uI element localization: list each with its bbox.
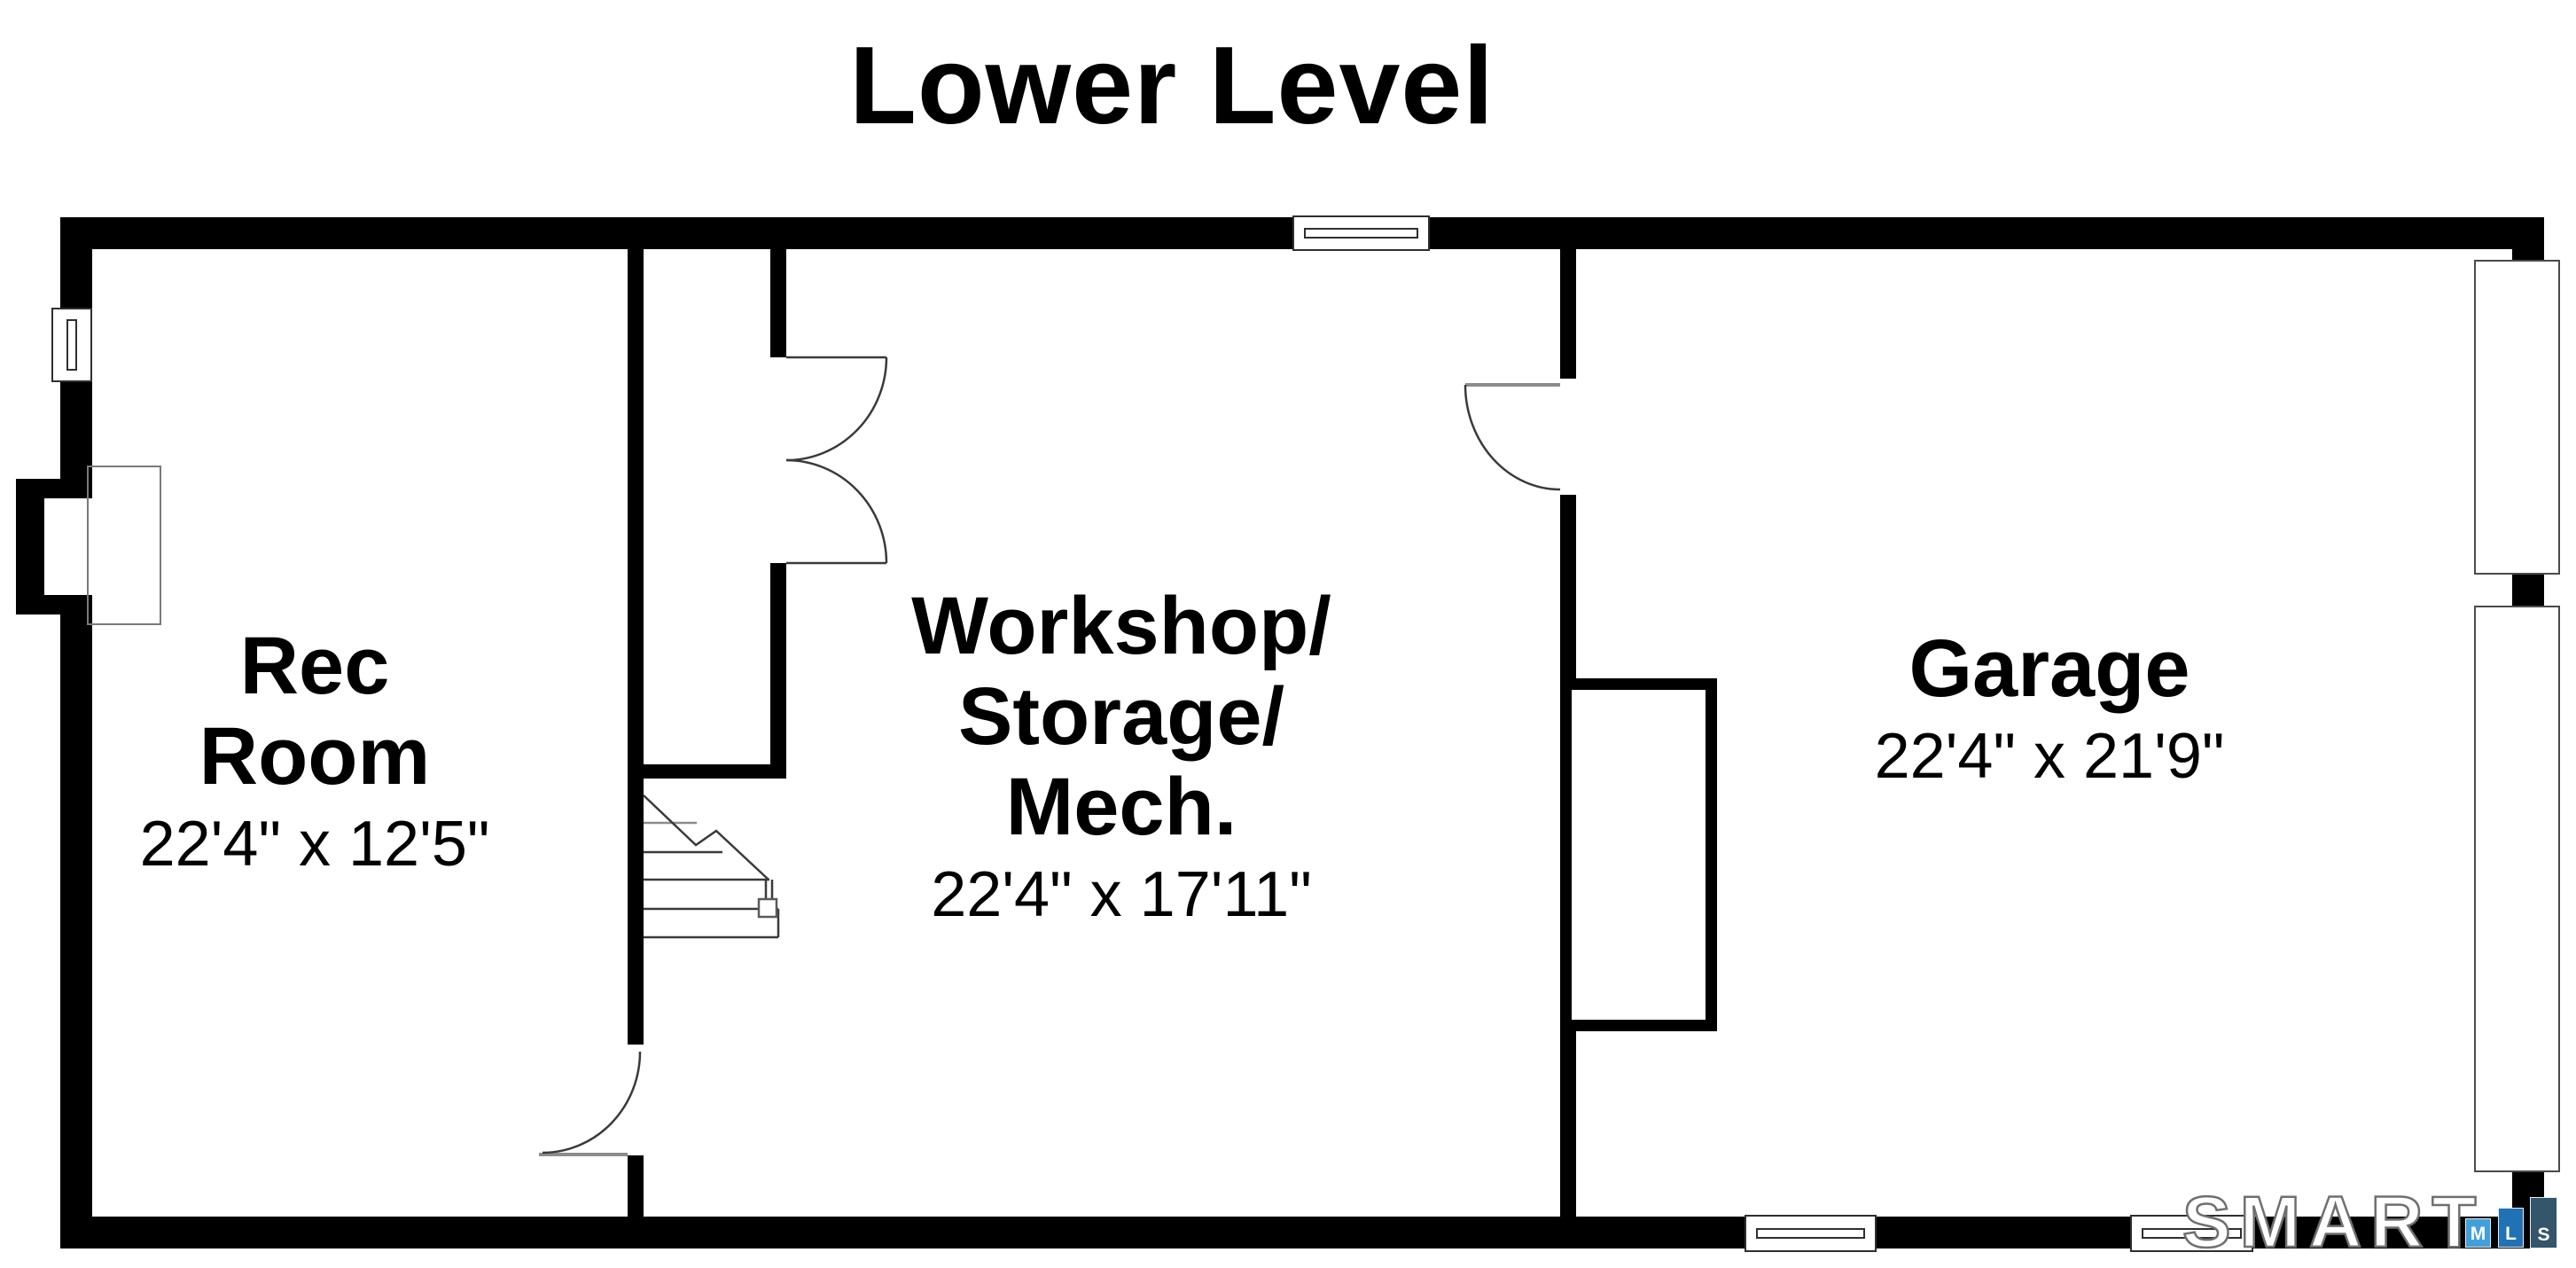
garage-door-opening-1 [2474, 260, 2560, 575]
room-dimensions: 22'4" x 21'9" [1828, 714, 2271, 799]
room-name-line: Storage/ [900, 671, 1343, 762]
room-name-line: Garage [1828, 623, 2271, 714]
window-glass-icon [1304, 228, 1418, 239]
wall-bay-bottom [16, 595, 92, 614]
wall-stair-enclosure-top [628, 764, 786, 779]
garage-entry-door [1465, 385, 1560, 489]
wall-stair-workshop-upper [770, 249, 786, 357]
stair-break-line [644, 795, 769, 880]
stair-newel-post [759, 899, 777, 917]
wall-recroom-stair-upper [628, 249, 644, 1045]
window-glass-icon [1756, 1228, 1865, 1239]
floor-plan-page: Lower Level [0, 0, 2576, 1268]
staircase [644, 795, 778, 937]
room-name-line: Mech. [900, 762, 1343, 852]
wall-stair-workshop-lower [770, 563, 786, 779]
door-swing-arc [543, 1052, 640, 1153]
door-swing-arc [786, 460, 886, 563]
window-workshop-top [1292, 215, 1430, 251]
door-swing-arc [1465, 385, 1560, 489]
mls-logo-box-s: S [2530, 1197, 2557, 1248]
workshop-double-door [786, 357, 886, 563]
wall-exterior-left-lower [60, 614, 92, 1217]
room-dimensions: 22'4" x 12'5" [93, 802, 536, 887]
room-name-line: Room [93, 711, 536, 802]
rec-room-door [539, 1052, 640, 1155]
wall-exterior-right-mid [2512, 575, 2544, 606]
window-garage-bottom-1 [1745, 1215, 1877, 1252]
door-swing-arc [786, 357, 886, 460]
workshop-label: Workshop/ Storage/ Mech. 22'4" x 17'11" [900, 581, 1343, 937]
mls-logo-box-l: L [2498, 1208, 2524, 1248]
rec-room-bay-fixture [87, 466, 161, 625]
wall-workshop-garage-upper [1560, 249, 1576, 379]
wall-recroom-stair-lower [628, 1155, 644, 1217]
mls-logo-box-m: M [2465, 1218, 2491, 1248]
window-glass-icon [2142, 1228, 2242, 1239]
page-title: Lower Level [729, 20, 1615, 153]
room-name-line: Workshop/ [900, 581, 1343, 671]
garage-label: Garage 22'4" x 21'9" [1828, 623, 2271, 799]
room-dimensions: 22'4" x 17'11" [900, 852, 1343, 937]
window-garage-bottom-2 [2130, 1215, 2253, 1252]
garage-door-opening-2 [2474, 606, 2560, 1172]
wall-exterior-right-upper [2512, 217, 2544, 260]
rec-room-label: Rec Room 22'4" x 12'5" [93, 621, 536, 887]
window-rec-room-left [51, 308, 92, 382]
window-glass-icon [66, 319, 77, 371]
room-name-line: Rec [93, 621, 536, 711]
garage-stair-landing [1560, 678, 1717, 1031]
